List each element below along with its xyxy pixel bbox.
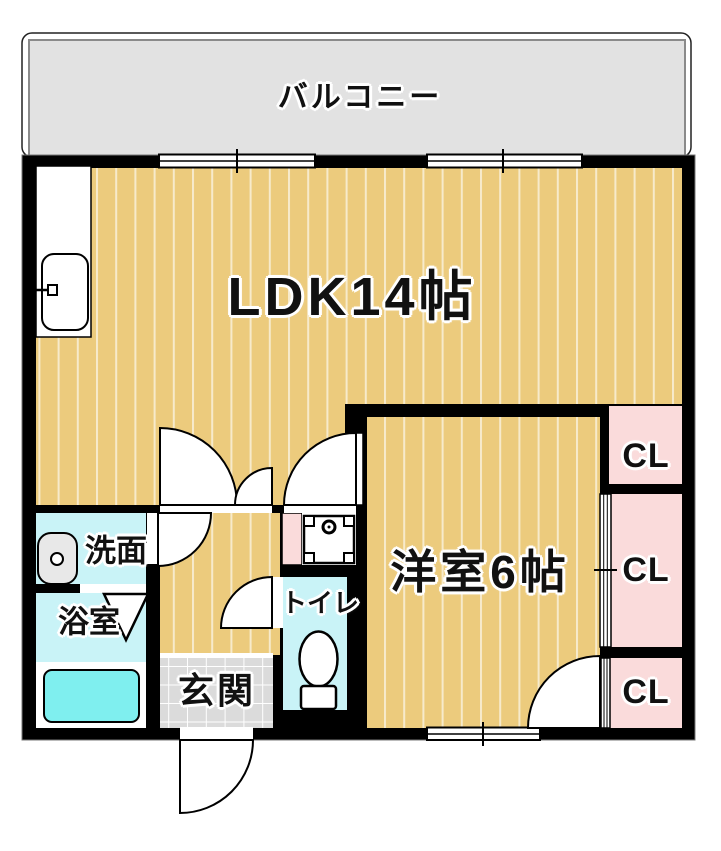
- entrance-doorway: [180, 727, 253, 740]
- toilet-label: トイレ: [281, 590, 359, 616]
- western-room-label: 洋室6帖: [390, 549, 570, 595]
- bathtub: [44, 670, 139, 722]
- laundry-shelf: [282, 513, 302, 565]
- floorplan: バルコニー LDK14帖 洋室6帖 CL CL CL 洗面 浴室 トイレ 玄関: [0, 0, 721, 851]
- floorplan-drawing: [0, 0, 721, 851]
- ldk-label: LDK14帖: [227, 270, 476, 324]
- bathroom-label: 浴室: [58, 607, 120, 638]
- entrance-label: 玄関: [178, 673, 256, 709]
- entrance-door-swing: [180, 740, 253, 813]
- kitchen-faucet-handle: [48, 285, 57, 295]
- washroom-label: 洗面: [85, 536, 147, 567]
- wash-basin-drain: [51, 553, 63, 565]
- balcony-label: バルコニー: [278, 83, 442, 113]
- toilet-bowl: [300, 632, 338, 687]
- closet-top-label: CL: [622, 439, 669, 473]
- bathroom-doorway: [80, 584, 146, 593]
- washing-machine-pan: [304, 516, 354, 563]
- entrance-step-edge: [160, 653, 273, 658]
- closet-middle-label: CL: [622, 553, 669, 587]
- closet-bottom-sliding-door: [601, 658, 610, 728]
- toilet-tank: [301, 686, 336, 709]
- closet-bottom-label: CL: [622, 675, 669, 709]
